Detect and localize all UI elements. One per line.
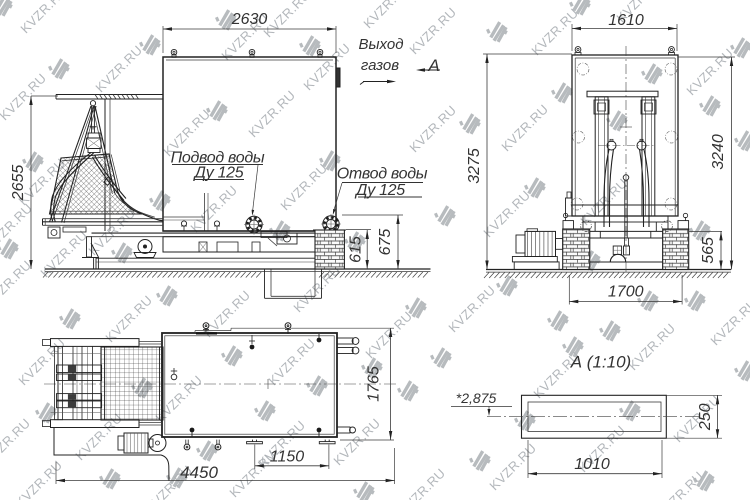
svg-text:KVZR.RU: KVZR.RU xyxy=(265,335,318,388)
svg-text:1150: 1150 xyxy=(270,448,305,465)
svg-text:KVZR.RU: KVZR.RU xyxy=(330,415,383,468)
svg-text:KVZR.RU: KVZR.RU xyxy=(406,4,459,57)
svg-text:Отвод воды: Отвод воды xyxy=(337,166,428,183)
svg-text:4450: 4450 xyxy=(180,463,218,482)
svg-text:KVZR.RU: KVZR.RU xyxy=(290,262,343,315)
svg-text:2655: 2655 xyxy=(10,165,27,202)
svg-text:675: 675 xyxy=(377,229,394,256)
svg-text:А: А xyxy=(427,56,439,75)
svg-text:615: 615 xyxy=(348,236,365,263)
svg-text:3275: 3275 xyxy=(466,148,483,184)
svg-text:1765: 1765 xyxy=(366,366,383,402)
svg-text:KVZR.RU: KVZR.RU xyxy=(486,440,539,493)
svg-text:KVZR.RU: KVZR.RU xyxy=(406,102,459,155)
svg-text:565: 565 xyxy=(700,237,717,264)
svg-text:KVZR.RU: KVZR.RU xyxy=(0,257,34,310)
svg-text:3240: 3240 xyxy=(710,134,727,170)
svg-text:KVZR.RU: KVZR.RU xyxy=(12,457,65,500)
svg-text:KVZR.RU: KVZR.RU xyxy=(528,5,581,58)
svg-text:KVZR.RU: KVZR.RU xyxy=(0,70,49,123)
svg-text:KVZR.RU: KVZR.RU xyxy=(362,308,415,361)
svg-text:KVZR.RU: KVZR.RU xyxy=(0,415,33,468)
svg-text:KVZR.RU: KVZR.RU xyxy=(360,0,413,31)
svg-text:KVZR.RU: KVZR.RU xyxy=(707,295,750,348)
svg-text:250: 250 xyxy=(697,403,714,431)
svg-text:Выход: Выход xyxy=(358,36,403,53)
svg-text:*2,875: *2,875 xyxy=(456,390,497,406)
svg-text:KVZR.RU: KVZR.RU xyxy=(445,282,498,335)
svg-text:KVZR.RU: KVZR.RU xyxy=(683,45,736,98)
svg-text:KVZR.RU: KVZR.RU xyxy=(17,0,70,36)
svg-text:KVZR.RU: KVZR.RU xyxy=(300,40,353,93)
svg-text:Ду 125: Ду 125 xyxy=(193,165,244,182)
svg-text:KVZR.RU: KVZR.RU xyxy=(625,320,678,373)
svg-text:KVZR.RU: KVZR.RU xyxy=(245,87,298,140)
svg-text:KVZR.RU: KVZR.RU xyxy=(395,465,448,500)
svg-text:1610: 1610 xyxy=(608,12,644,29)
svg-text:KVZR.RU: KVZR.RU xyxy=(92,42,145,95)
svg-text:2630: 2630 xyxy=(231,11,268,28)
svg-text:А (1:10): А (1:10) xyxy=(570,353,631,372)
svg-text:1010: 1010 xyxy=(574,456,610,473)
svg-text:KVZR.RU: KVZR.RU xyxy=(498,101,551,154)
svg-text:KVZR.RU: KVZR.RU xyxy=(37,227,90,280)
svg-text:1700: 1700 xyxy=(608,284,644,301)
svg-text:Ду 125: Ду 125 xyxy=(354,182,405,199)
svg-text:KVZR.RU: KVZR.RU xyxy=(187,182,240,235)
svg-text:KVZR.RU: KVZR.RU xyxy=(277,160,330,213)
svg-text:газов: газов xyxy=(361,57,399,74)
svg-text:KVZR.RU: KVZR.RU xyxy=(102,292,155,345)
